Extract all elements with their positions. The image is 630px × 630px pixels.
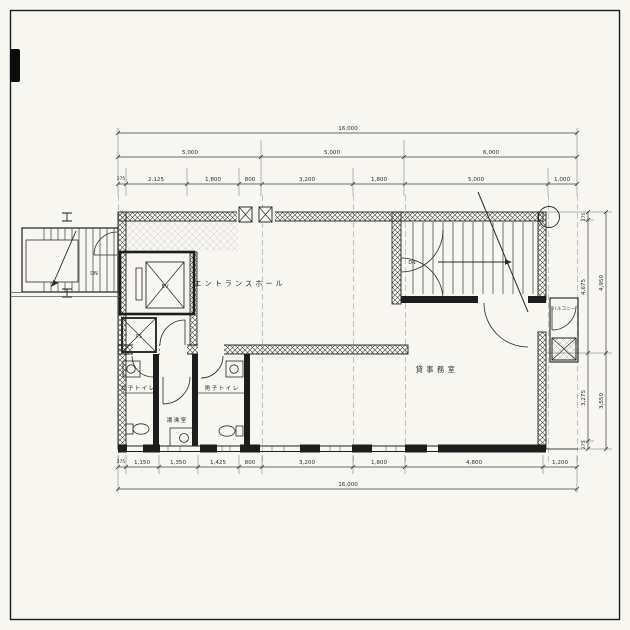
mens-toilet-door — [201, 356, 223, 378]
vestibule-door-lower — [401, 258, 443, 300]
womens-sink — [127, 365, 135, 373]
elevator-shaft: EV — [120, 252, 194, 314]
dimensions-bottom: 275 1,150 1,350 1,425 800 3,200 1,800 4,… — [116, 459, 579, 491]
dim-bot-d8: 1,200 — [552, 460, 568, 466]
entrance-porch-tiles — [126, 221, 238, 251]
interior-stair: DN — [408, 192, 559, 312]
entrance-hall-label: エントランスホール — [194, 279, 286, 288]
womens-wc-tank — [126, 424, 133, 434]
dim-top-total: 16,000 — [338, 126, 358, 132]
dim-bot-d2: 1,350 — [170, 460, 186, 466]
womens-toilet-door — [132, 356, 153, 377]
dim-right-o1: 3,550 — [599, 393, 605, 409]
dim-bot-d4: 800 — [245, 460, 256, 466]
dim-bot-d0: 275 — [117, 459, 126, 465]
dim-bot-d3: 1,425 — [210, 460, 226, 466]
dim-top-d1: 2,125 — [148, 177, 164, 183]
dim-top-d6: 5,000 — [468, 177, 484, 183]
east-wall-lower — [538, 332, 546, 449]
vestibule-door-upper — [401, 230, 443, 272]
dim-top-d3: 800 — [245, 177, 256, 183]
dim-bottom-total: 16,000 — [338, 482, 358, 488]
site-lines — [10, 293, 120, 297]
womens-wc — [133, 424, 149, 434]
scanned-floor-plan-page: 16,000 5,000 5,000 6,000 275 2,125 1,800… — [0, 0, 630, 630]
mens-sink-counter — [226, 361, 243, 377]
dim-bot-d1: 1,150 — [134, 460, 150, 466]
dim-right-i0: 275 — [581, 213, 587, 222]
dim-top-span-3: 6,000 — [483, 150, 499, 156]
pipe-shaft-label: PS — [136, 334, 142, 340]
down-left-label: DN — [90, 271, 98, 277]
doors — [94, 230, 576, 404]
mens-wc-tank — [236, 426, 243, 436]
mens-toilet-label: 男子トイレ — [205, 385, 240, 392]
north-wall — [118, 212, 543, 221]
floor-plan-drawing: 16,000 5,000 5,000 6,000 275 2,125 1,800… — [0, 0, 630, 630]
dimensions-right: 275 4,675 3,275 275 4,950 3,550 — [581, 210, 608, 451]
down-right-label: DN — [408, 260, 416, 266]
dim-bot-d7: 4,800 — [466, 460, 482, 466]
toilet-partitions — [153, 354, 250, 449]
dim-right-i3: 275 — [581, 441, 587, 450]
dim-right-i2: 3,275 — [581, 390, 587, 406]
beam-mark-bottom — [62, 289, 72, 297]
sheet-frame — [10, 11, 620, 620]
dim-right-i1: 4,675 — [581, 279, 587, 295]
dim-top-d5: 1,800 — [371, 177, 387, 183]
dim-top-d2: 1,800 — [205, 177, 221, 183]
dimensions-top: 16,000 5,000 5,000 6,000 275 2,125 1,800… — [116, 126, 579, 186]
mens-sink — [230, 365, 238, 373]
hall-service-door — [160, 320, 185, 345]
dim-bot-d5: 3,200 — [299, 460, 315, 466]
scan-smudge — [10, 49, 20, 82]
beam-mark-top — [62, 213, 72, 221]
kitchenette-door — [163, 377, 190, 404]
dim-top-d4: 3,200 — [299, 177, 315, 183]
dim-top-span-1: 5,000 — [182, 150, 198, 156]
elevator-label: EV — [161, 284, 168, 290]
womens-toilet-label: 女子トイレ — [121, 384, 156, 392]
stair-entry-door — [94, 232, 117, 255]
dim-right-o0: 4,950 — [599, 275, 605, 291]
office-label: 貸事務室 — [416, 365, 459, 374]
building-walls — [118, 207, 578, 453]
kitchenette-label: 湯沸室 — [167, 416, 188, 424]
kitchenette-sink — [180, 434, 189, 443]
stair-hall-west-wall — [392, 212, 401, 304]
dim-top-d0: 275 — [117, 176, 126, 182]
dim-top-d7: 1,000 — [554, 177, 570, 183]
dim-bot-d6: 1,800 — [371, 460, 387, 466]
office-door — [484, 303, 528, 347]
balcony-label: バルコニー — [552, 306, 576, 312]
dim-top-span-2: 5,000 — [324, 150, 340, 156]
mens-wc — [219, 426, 235, 436]
